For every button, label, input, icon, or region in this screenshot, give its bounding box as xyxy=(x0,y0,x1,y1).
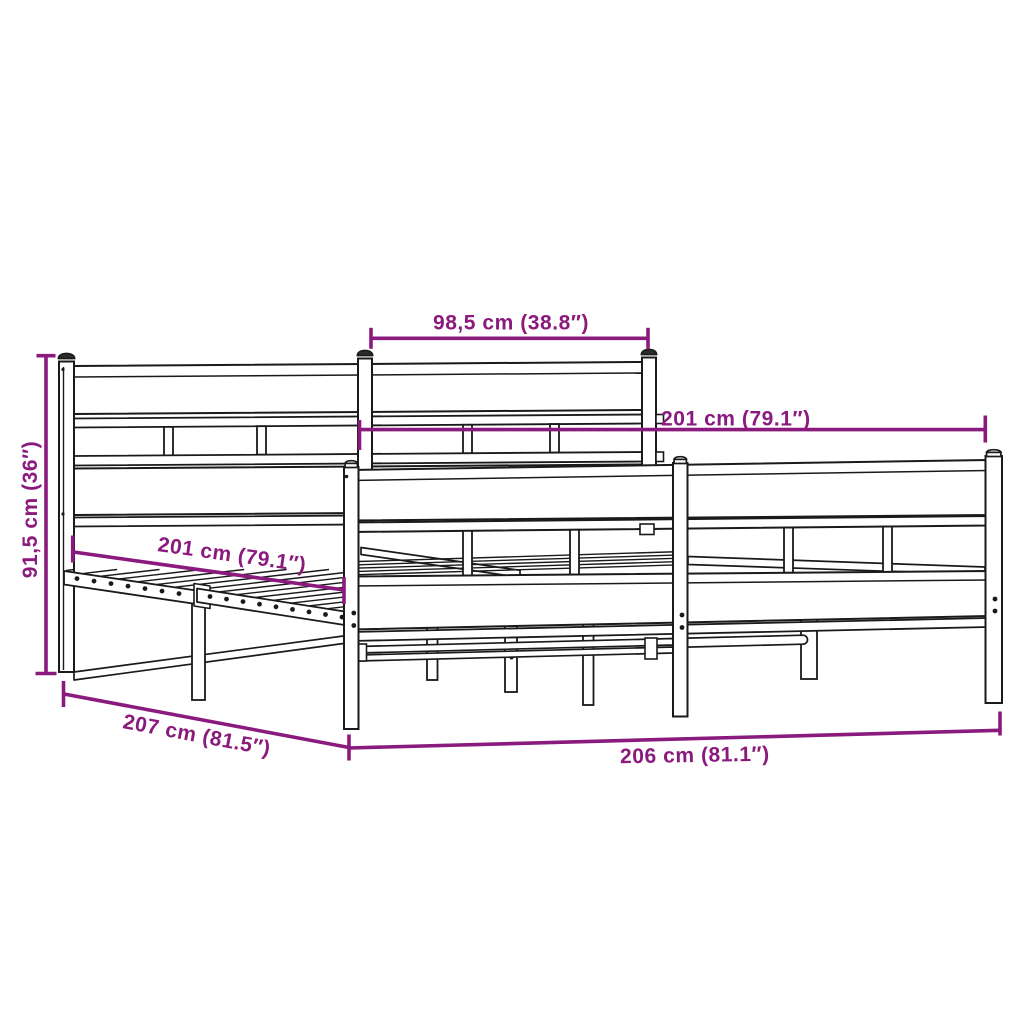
svg-text:201 cm (79.1″): 201 cm (79.1″) xyxy=(661,408,811,431)
svg-text:98,5 cm (38.8″): 98,5 cm (38.8″) xyxy=(433,312,589,335)
svg-text:206 cm (81.1″): 206 cm (81.1″) xyxy=(620,743,770,769)
svg-text:91,5 cm (36″): 91,5 cm (36″) xyxy=(19,441,42,578)
